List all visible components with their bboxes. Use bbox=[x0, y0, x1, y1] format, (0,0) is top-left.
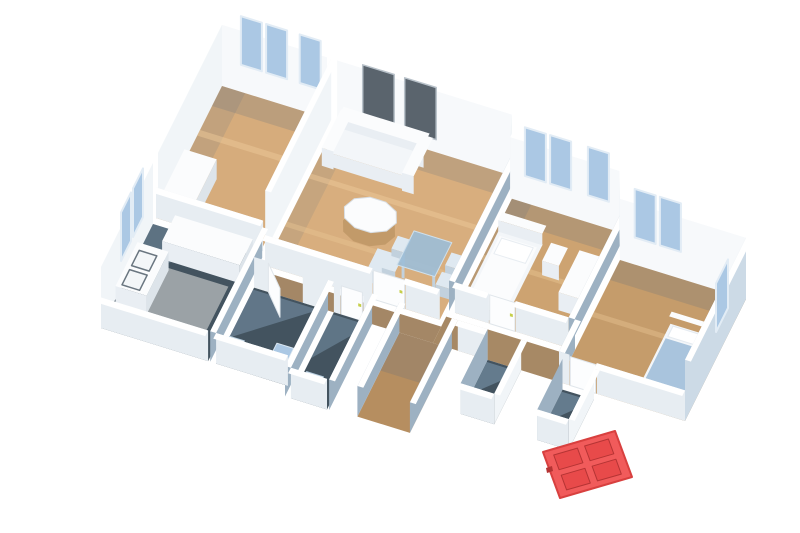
bathroom-north-wall-face bbox=[254, 257, 268, 292]
bedroom-middle-window-pane bbox=[588, 147, 609, 202]
sofa-armrest-front bbox=[402, 173, 414, 195]
facade-step-wall bbox=[619, 171, 620, 260]
bedroom-middle-window-pane bbox=[550, 135, 571, 190]
room-a-window-pane bbox=[241, 16, 262, 71]
room-a-window-pane bbox=[300, 34, 321, 89]
wc-north-wall-face bbox=[334, 282, 341, 315]
bedroom-middle-window-pane bbox=[525, 127, 546, 182]
bedroom-right-window-pane bbox=[660, 197, 681, 252]
floor-plan-viewport bbox=[0, 0, 800, 533]
room-a-window-pane bbox=[266, 24, 287, 79]
bedroom-right-window-pane bbox=[635, 189, 656, 244]
sofa-armrest-front bbox=[322, 148, 334, 170]
floor-plan-3d-render bbox=[0, 0, 800, 533]
